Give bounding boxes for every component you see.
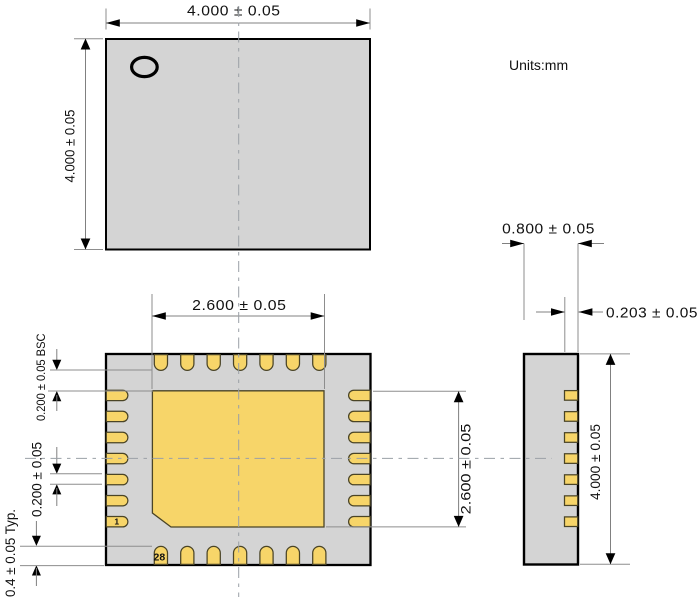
svg-text:4.000 ± 0.05: 4.000 ± 0.05 — [62, 109, 78, 182]
svg-text:4.000 ± 0.05: 4.000 ± 0.05 — [187, 4, 281, 20]
svg-text:0.800 ± 0.05: 0.800 ± 0.05 — [502, 222, 595, 238]
svg-text:0.203 ± 0.05: 0.203 ± 0.05 — [606, 306, 698, 322]
svg-text:Units:mm: Units:mm — [509, 57, 568, 73]
svg-text:28: 28 — [154, 551, 166, 563]
svg-text:0.200 ± 0.05 BSC: 0.200 ± 0.05 BSC — [34, 333, 48, 421]
svg-text:0.200 ± 0.05: 0.200 ± 0.05 — [30, 442, 45, 517]
svg-text:2.600 ± 0.05: 2.600 ± 0.05 — [192, 298, 286, 314]
svg-text:2.600 ± 0.05: 2.600 ± 0.05 — [458, 423, 474, 514]
svg-text:1: 1 — [114, 517, 119, 527]
svg-text:4.000 ± 0.05: 4.000 ± 0.05 — [587, 424, 603, 500]
svg-text:0.4 ± 0.05 Typ.: 0.4 ± 0.05 Typ. — [3, 509, 18, 597]
